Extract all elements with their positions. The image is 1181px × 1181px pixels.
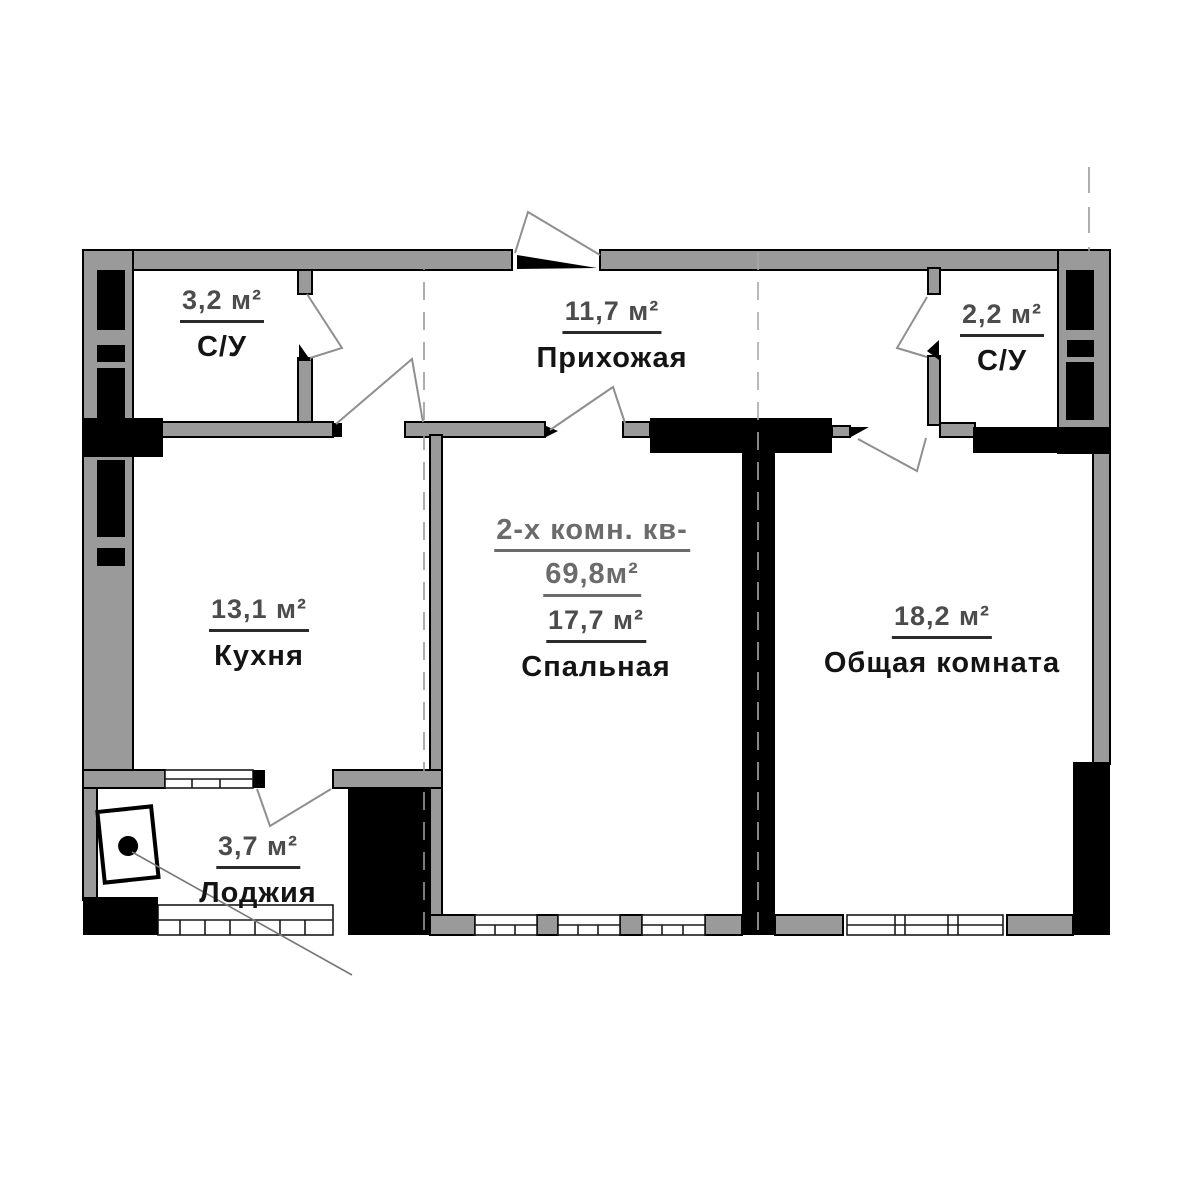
floor-plan-canvas: 3,2 м² С/У 11,7 м² Прихожая 2,2 м² С/У 2… (0, 0, 1181, 1181)
column-left-2 (97, 345, 125, 362)
room-label-kitchen: 13,1 м² Кухня (209, 593, 309, 674)
room-area-common-room: 18,2 м² (892, 600, 992, 639)
room-label-loggia: 3,7 м² Лоджия (199, 830, 316, 911)
column-left-4 (97, 460, 125, 537)
wall-left-loggia (83, 788, 97, 900)
door-swing-bath2 (897, 297, 927, 357)
room-area-bathroom-left: 3,2 м² (180, 284, 264, 323)
room-label-bathroom-left: 3,2 м² С/У (180, 284, 264, 365)
wall-bottom-gray-2 (775, 915, 843, 935)
room-label-hallway: 11,7 м² Прихожая (536, 295, 687, 376)
apartment-title-line1: 2-х комн. кв- (494, 512, 690, 552)
room-area-hallway: 11,7 м² (563, 295, 662, 334)
room-area-bedroom: 17,7 м² (546, 604, 646, 643)
wall-bath2-stub-bottom (928, 356, 940, 425)
door-swing-common (858, 438, 926, 471)
wall-bottom-gray-3 (1007, 915, 1073, 935)
wall-right-lower (1093, 453, 1110, 764)
doorstop-kitchen (333, 423, 342, 437)
room-name-kitchen: Кухня (209, 638, 309, 674)
door-swing-entrance (515, 212, 600, 255)
door-swing-balcony (257, 789, 331, 826)
column-right-1 (1066, 270, 1094, 330)
column-left-1 (97, 270, 125, 330)
wall-bath2-bottom (940, 423, 975, 437)
room-label-common-room: 18,2 м² Общая комната (824, 600, 1060, 681)
wall-bottom-bedroom-corner (430, 915, 475, 935)
wall-hall-bedroom-right (623, 422, 650, 437)
wall-kitchen-loggia-right (333, 770, 442, 788)
room-name-loggia: Лоджия (199, 875, 316, 911)
wall-top-right (600, 250, 1110, 270)
wall-bottom-mullion-1 (537, 915, 558, 935)
column-right-3 (1066, 362, 1094, 420)
loggia-fixture (97, 806, 158, 882)
door-swing-bath1 (307, 294, 342, 358)
column-left-5 (97, 548, 125, 566)
room-area-bathroom-right: 2,2 м² (960, 298, 1044, 337)
door-swing-kitchen (336, 359, 423, 424)
room-area-kitchen: 13,1 м² (209, 593, 309, 632)
core-hall-t-bar (650, 418, 832, 453)
wall-bedroom-left (430, 435, 442, 935)
wall-bottom-gray-1 (705, 915, 742, 935)
room-label-bathroom-right: 2,2 м² С/У (960, 298, 1044, 379)
apartment-title: 2-х комн. кв- 69,8м² (494, 512, 690, 597)
column-right-2 (1067, 340, 1094, 357)
doorstop-balcony (253, 770, 265, 788)
room-name-common-room: Общая комната (824, 645, 1060, 681)
wall-hall-bedroom-left (405, 422, 545, 437)
column-loggia-corner (83, 897, 158, 935)
column-left-3 (97, 368, 125, 418)
room-label-bedroom: 17,7 м² Спальная (521, 604, 670, 685)
room-name-bathroom-left: С/У (180, 329, 264, 365)
room-name-bedroom: Спальная (521, 649, 670, 685)
room-name-hallway: Прихожая (536, 340, 687, 376)
core-loggia-bedroom (348, 787, 430, 935)
core-bath2-bottom (973, 427, 1110, 453)
apartment-title-line2: 69,8м² (543, 556, 641, 596)
wall-bottom-mullion-2 (620, 915, 642, 935)
wall-bath2-stub-top (928, 268, 940, 294)
room-name-bathroom-right: С/У (960, 343, 1044, 379)
wall-top-left (83, 250, 512, 270)
door-leaf-common (851, 427, 869, 437)
column-left-cross (83, 418, 163, 457)
wall-kitchen-loggia-left (83, 770, 165, 788)
room-area-loggia: 3,7 м² (216, 830, 300, 869)
wall-bath1-stub-top (298, 270, 312, 294)
door-swing-bedroom (550, 387, 625, 430)
door-leaf-entrance (517, 255, 597, 269)
wall-hall-common-stub (832, 426, 850, 437)
column-right-corner (1073, 762, 1110, 935)
